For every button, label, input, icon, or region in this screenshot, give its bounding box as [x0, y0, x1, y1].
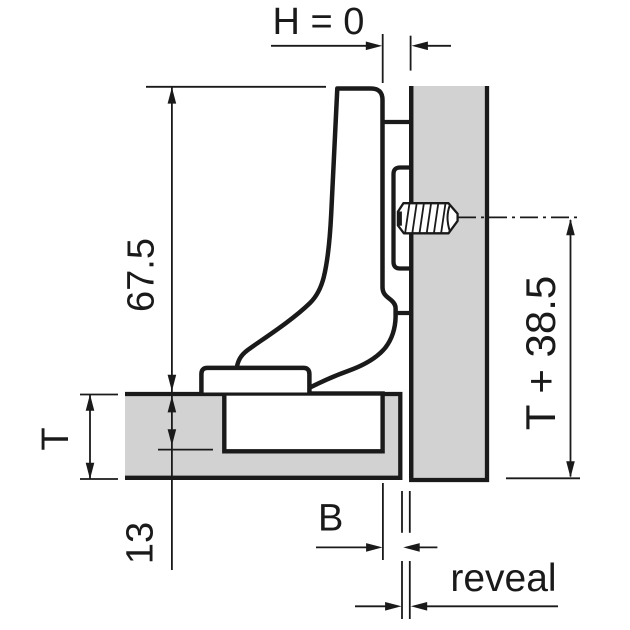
svg-text:67.5: 67.5 [121, 238, 163, 312]
svg-text:reveal: reveal [450, 557, 556, 600]
svg-text:T + 38.5: T + 38.5 [517, 276, 564, 431]
svg-text:T: T [35, 427, 77, 450]
svg-text:B: B [318, 498, 343, 540]
svg-text:H = 0: H = 0 [273, 1, 365, 43]
svg-text:13: 13 [120, 522, 162, 564]
